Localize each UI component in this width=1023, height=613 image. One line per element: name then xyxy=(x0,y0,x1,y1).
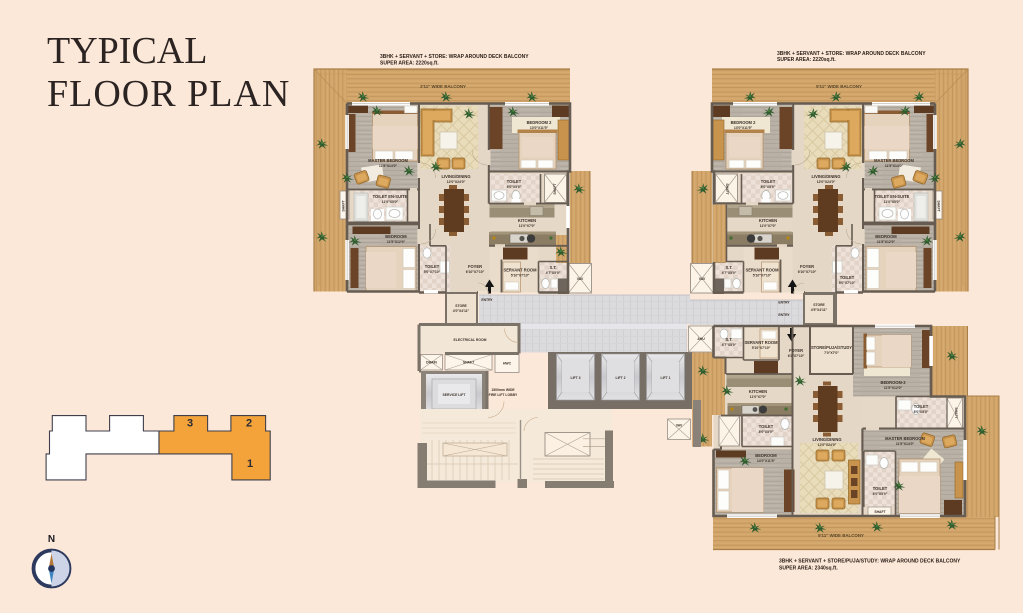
svg-text:HWC: HWC xyxy=(503,362,512,366)
svg-text:SHAFT: SHAFT xyxy=(937,200,941,212)
svg-text:3BHK + SERVANT + STORE: WRAP A: 3BHK + SERVANT + STORE: WRAP AROUND DECK… xyxy=(777,51,926,57)
svg-text:BEDROOM: BEDROOM xyxy=(755,453,777,458)
svg-text:4′7″X5′0″: 4′7″X5′0″ xyxy=(722,343,737,347)
svg-text:BEDROOM 2: BEDROOM 2 xyxy=(731,120,757,125)
svg-text:STORE/PUJA/STUDY: STORE/PUJA/STUDY xyxy=(811,345,852,350)
svg-text:5′10″X7′10″: 5′10″X7′10″ xyxy=(752,346,771,350)
svg-text:6′2″X7′10″: 6′2″X7′10″ xyxy=(788,354,805,358)
svg-text:TOILET EN-SUITE: TOILET EN-SUITE xyxy=(373,194,408,199)
svg-text:5′11″ WIDE BALCONY: 5′11″ WIDE BALCONY xyxy=(816,84,862,89)
svg-text:TOILET: TOILET xyxy=(759,424,774,429)
svg-text:3BHK + SERVANT + STORE/PUJA/ST: 3BHK + SERVANT + STORE/PUJA/STUDY: WRAP … xyxy=(779,559,961,565)
svg-text:STORE: STORE xyxy=(455,304,467,308)
svg-text:5′0″X7′10″: 5′0″X7′10″ xyxy=(839,281,856,285)
svg-text:4′5″X4′11″: 4′5″X4′11″ xyxy=(811,308,828,312)
svg-text:ENTRY: ENTRY xyxy=(778,301,790,305)
svg-text:VAV: VAV xyxy=(676,424,683,428)
svg-text:12′0″X24′0″: 12′0″X24′0″ xyxy=(818,443,837,447)
svg-text:11′5″X12′0″: 11′5″X12′0″ xyxy=(877,240,896,244)
svg-text:11′5″X14′0″: 11′5″X14′0″ xyxy=(896,442,915,446)
svg-text:LIFT 1: LIFT 1 xyxy=(661,376,671,380)
svg-text:AHU: AHU xyxy=(697,337,705,341)
svg-text:TOILET EN-SUITE: TOILET EN-SUITE xyxy=(875,194,910,199)
svg-text:TOILET: TOILET xyxy=(840,275,855,280)
svg-text:MASTER BEDROOM: MASTER BEDROOM xyxy=(885,436,925,441)
svg-text:6′10″X7′10″: 6′10″X7′10″ xyxy=(798,270,817,274)
svg-text:SUPER AREA: 2220sq.ft.: SUPER AREA: 2220sq.ft. xyxy=(380,61,439,67)
svg-text:ENTRY: ENTRY xyxy=(778,313,790,317)
svg-text:8′0″X5′0″: 8′0″X5′0″ xyxy=(507,185,522,189)
svg-text:SHAFT: SHAFT xyxy=(342,199,346,211)
svg-text:TOILET: TOILET xyxy=(425,264,440,269)
svg-text:SERVANT ROOM: SERVANT ROOM xyxy=(503,268,537,273)
svg-text:LIVING/DINING: LIVING/DINING xyxy=(811,174,840,179)
svg-text:FOYER: FOYER xyxy=(789,348,803,353)
svg-text:13′0″X11′5″: 13′0″X11′5″ xyxy=(734,126,753,130)
svg-text:VAV: VAV xyxy=(699,277,706,281)
svg-text:SHAFT: SHAFT xyxy=(463,361,475,365)
svg-text:S.T.: S.T. xyxy=(549,265,556,270)
svg-text:S.T.: S.T. xyxy=(725,265,732,270)
svg-text:13′0″X11′5″: 13′0″X11′5″ xyxy=(530,126,549,130)
svg-text:8′0″X5′0″: 8′0″X5′0″ xyxy=(914,410,929,414)
svg-text:SHAFT: SHAFT xyxy=(874,510,886,514)
svg-text:7′0″X7′0″: 7′0″X7′0″ xyxy=(824,351,839,355)
svg-text:11′0″X5′0″: 11′0″X5′0″ xyxy=(884,200,901,204)
svg-text:STORE: STORE xyxy=(813,303,825,307)
svg-text:LIVING/DINING: LIVING/DINING xyxy=(812,437,841,442)
svg-text:LIVING/DINING: LIVING/DINING xyxy=(441,174,470,179)
svg-text:ELECTRICAL ROOM: ELECTRICAL ROOM xyxy=(454,338,487,342)
svg-text:14′0″X11′5″: 14′0″X11′5″ xyxy=(757,459,776,463)
svg-text:MASTER BEDROOM: MASTER BEDROOM xyxy=(874,158,914,163)
svg-text:TYPICAL: TYPICAL xyxy=(47,30,207,72)
svg-text:1500mm WIDE: 1500mm WIDE xyxy=(491,388,515,392)
svg-text:SUPER AREA: 2220sq.ft.: SUPER AREA: 2220sq.ft. xyxy=(777,57,836,63)
svg-text:FLOOR PLAN: FLOOR PLAN xyxy=(47,73,290,115)
svg-text:SHAFT: SHAFT xyxy=(553,182,557,194)
svg-text:TOILET: TOILET xyxy=(873,486,888,491)
svg-text:KITCHEN: KITCHEN xyxy=(749,389,767,394)
svg-text:SHAFT: SHAFT xyxy=(954,407,958,419)
svg-text:11′5″X14′0″: 11′5″X14′0″ xyxy=(885,164,904,168)
svg-text:SERVICE LIFT: SERVICE LIFT xyxy=(443,393,467,397)
svg-text:11′5″X12′0″: 11′5″X12′0″ xyxy=(884,386,903,390)
svg-text:5′10″X7′10″: 5′10″X7′10″ xyxy=(753,274,772,278)
svg-text:ENTRY: ENTRY xyxy=(481,298,493,302)
svg-text:5′0″X7′10″: 5′0″X7′10″ xyxy=(424,270,441,274)
svg-text:SUPER AREA: 2340sq.ft.: SUPER AREA: 2340sq.ft. xyxy=(779,566,838,572)
svg-text:8′0″X5′0″: 8′0″X5′0″ xyxy=(759,430,774,434)
svg-text:BEDROOM: BEDROOM xyxy=(385,234,407,239)
svg-text:5′10″X7′10″: 5′10″X7′10″ xyxy=(511,274,530,278)
svg-text:BEDROOM: BEDROOM xyxy=(875,234,897,239)
svg-text:11′5″X14′0″: 11′5″X14′0″ xyxy=(379,164,398,168)
svg-text:LIFT 3: LIFT 3 xyxy=(571,376,581,380)
svg-text:3: 3 xyxy=(187,418,193,430)
svg-text:BEDROOM-3: BEDROOM-3 xyxy=(880,380,906,385)
svg-text:KITCHEN: KITCHEN xyxy=(518,218,536,223)
svg-text:2′11″ WIDE BALCONY: 2′11″ WIDE BALCONY xyxy=(420,84,466,89)
svg-text:4′7″X5′0″: 4′7″X5′0″ xyxy=(722,271,737,275)
svg-text:5′11″ WIDE BALCONY: 5′11″ WIDE BALCONY xyxy=(818,533,864,538)
svg-text:SERVANT ROOM: SERVANT ROOM xyxy=(745,268,779,273)
svg-text:BEDROOM 2: BEDROOM 2 xyxy=(527,120,553,125)
svg-text:TOILET: TOILET xyxy=(507,179,522,184)
svg-text:4′0″X4′11″: 4′0″X4′11″ xyxy=(453,309,470,313)
svg-text:8′0″X5′0″: 8′0″X5′0″ xyxy=(873,492,888,496)
svg-text:LIFT 2: LIFT 2 xyxy=(616,376,626,380)
svg-text:11′0″X7′0″: 11′0″X7′0″ xyxy=(760,224,777,228)
svg-text:8′0″X5′0″: 8′0″X5′0″ xyxy=(761,185,776,189)
svg-text:FOYER: FOYER xyxy=(800,264,814,269)
svg-text:KITCHEN: KITCHEN xyxy=(759,218,777,223)
svg-text:N: N xyxy=(48,534,55,545)
svg-text:SERVANT ROOM: SERVANT ROOM xyxy=(744,340,778,345)
svg-text:TOILET: TOILET xyxy=(761,179,776,184)
svg-text:3BHK + SERVANT + STORE: WRAP A: 3BHK + SERVANT + STORE: WRAP AROUND DECK… xyxy=(380,54,529,60)
svg-text:FIRE LIFT LOBBY: FIRE LIFT LOBBY xyxy=(489,393,518,397)
svg-text:11′0″X7′0″: 11′0″X7′0″ xyxy=(519,224,536,228)
svg-text:4′7″X5′0″: 4′7″X5′0″ xyxy=(546,271,561,275)
svg-text:11′0″X7′0″: 11′0″X7′0″ xyxy=(750,395,767,399)
svg-text:VAV: VAV xyxy=(577,277,584,281)
svg-text:12′0″X24′0″: 12′0″X24′0″ xyxy=(447,180,466,184)
svg-text:1: 1 xyxy=(247,458,253,470)
svg-text:SHAFT: SHAFT xyxy=(725,183,729,195)
svg-text:DRAIN: DRAIN xyxy=(426,361,437,365)
svg-text:MASTER BEDROOM: MASTER BEDROOM xyxy=(368,158,408,163)
svg-text:S.T.: S.T. xyxy=(725,337,732,342)
svg-text:2: 2 xyxy=(246,418,252,430)
svg-text:11′5″X12′0″: 11′5″X12′0″ xyxy=(387,240,406,244)
svg-text:12′0″X24′0″: 12′0″X24′0″ xyxy=(817,180,836,184)
svg-text:6′10″X7′10″: 6′10″X7′10″ xyxy=(466,270,485,274)
svg-text:FOYER: FOYER xyxy=(468,264,482,269)
svg-text:11′0″X5′0″: 11′0″X5′0″ xyxy=(382,200,399,204)
svg-text:TOILET: TOILET xyxy=(914,404,929,409)
